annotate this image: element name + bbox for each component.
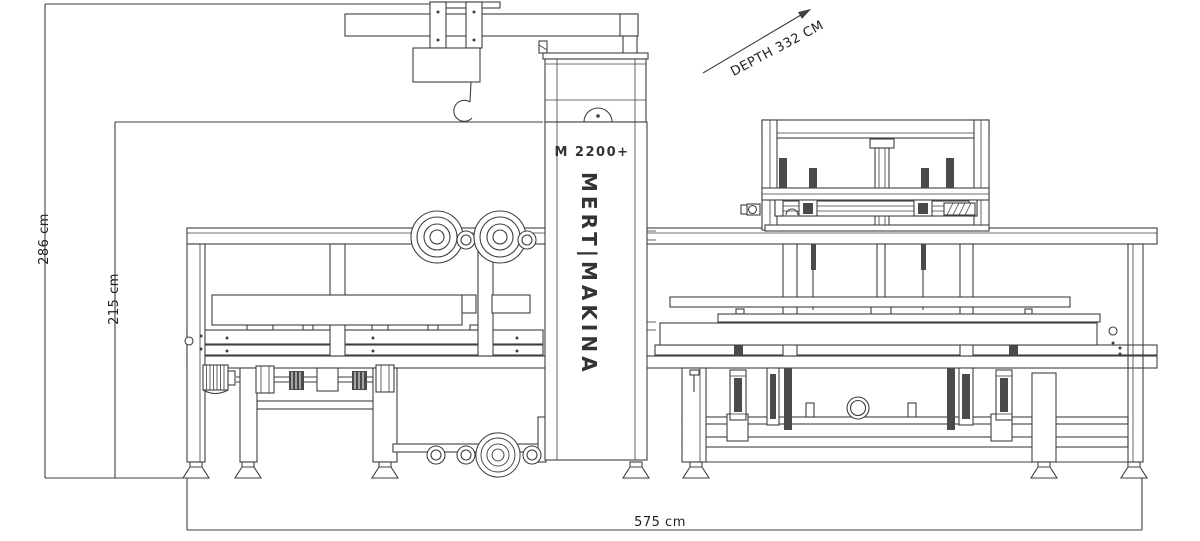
feed-roller-small xyxy=(457,231,475,249)
depth-arrowhead xyxy=(798,9,811,19)
height-286-label: 286 cm xyxy=(37,213,52,265)
dimension-depth-332: DEPTH 332 CM xyxy=(703,9,826,80)
hoist-body xyxy=(413,48,480,82)
width-575-label: 575 cm xyxy=(634,515,686,530)
shaft-bearing xyxy=(256,366,274,393)
leveling-foot xyxy=(1031,462,1057,478)
gantry-base-plate xyxy=(765,225,989,231)
bottom-roller xyxy=(457,446,475,464)
bottom-wheel xyxy=(476,433,520,477)
gantry-top-beam xyxy=(762,120,989,138)
upper-gantry xyxy=(741,120,989,231)
press-beam xyxy=(660,323,1097,345)
leveling-foot xyxy=(183,462,209,478)
lower-cross-bar xyxy=(682,437,1128,447)
leveling-foot xyxy=(235,462,261,478)
lower-cross-bar xyxy=(682,417,1128,424)
leveling-foot xyxy=(683,462,709,478)
drawing-root: M 2200+ MERT|MAKINA 286 cm 215 cm xyxy=(37,2,1157,530)
central-column: M 2200+ MERT|MAKINA xyxy=(539,41,656,460)
crane-hook xyxy=(454,100,472,121)
column-head-box xyxy=(545,59,646,122)
right-section-upper xyxy=(660,244,1117,356)
bottom-roller xyxy=(427,446,445,464)
cylinder-rod xyxy=(784,368,792,430)
table-rail-b-right xyxy=(655,345,1157,355)
leveling-foot xyxy=(1121,462,1147,478)
model-label: M 2200+ xyxy=(554,145,629,160)
hoist-cable xyxy=(470,82,471,102)
leveling-foot xyxy=(623,462,649,478)
gantry-cylinder-rod xyxy=(779,158,787,188)
table-main-rail xyxy=(187,356,1157,368)
gearbox xyxy=(317,368,338,391)
crane-support-pipe xyxy=(623,36,637,54)
left-frame-upright xyxy=(187,244,205,462)
crane-beam xyxy=(345,14,638,36)
gantry-cylinder-rod xyxy=(809,168,817,188)
feed-roller xyxy=(411,211,463,263)
gantry-cylinder-rod xyxy=(921,168,929,188)
workpiece-tray xyxy=(212,295,462,325)
machine-leg xyxy=(1032,373,1056,462)
cylinder-rod xyxy=(947,368,955,430)
column-top-plate xyxy=(543,53,648,59)
feed-roller-small xyxy=(518,231,536,249)
left-underframe xyxy=(203,365,546,477)
bottom-roller xyxy=(523,446,541,464)
height-215-label: 215 cm xyxy=(107,273,122,325)
gantry-cylinder-rod xyxy=(946,158,954,188)
table-top-rail xyxy=(187,228,1157,244)
machine-dimension-diagram: M 2200+ MERT|MAKINA 286 cm 215 cm xyxy=(0,0,1200,541)
plank-upper xyxy=(670,297,1070,307)
machine-feet xyxy=(183,462,1147,478)
shaft-bearing xyxy=(376,365,394,392)
leveling-foot xyxy=(372,462,398,478)
brand-label: MERT|MAKINA xyxy=(577,172,601,376)
dimension-width-575: 575 cm xyxy=(187,478,1142,530)
machine-leg xyxy=(240,368,257,462)
plank-lower xyxy=(718,314,1100,322)
